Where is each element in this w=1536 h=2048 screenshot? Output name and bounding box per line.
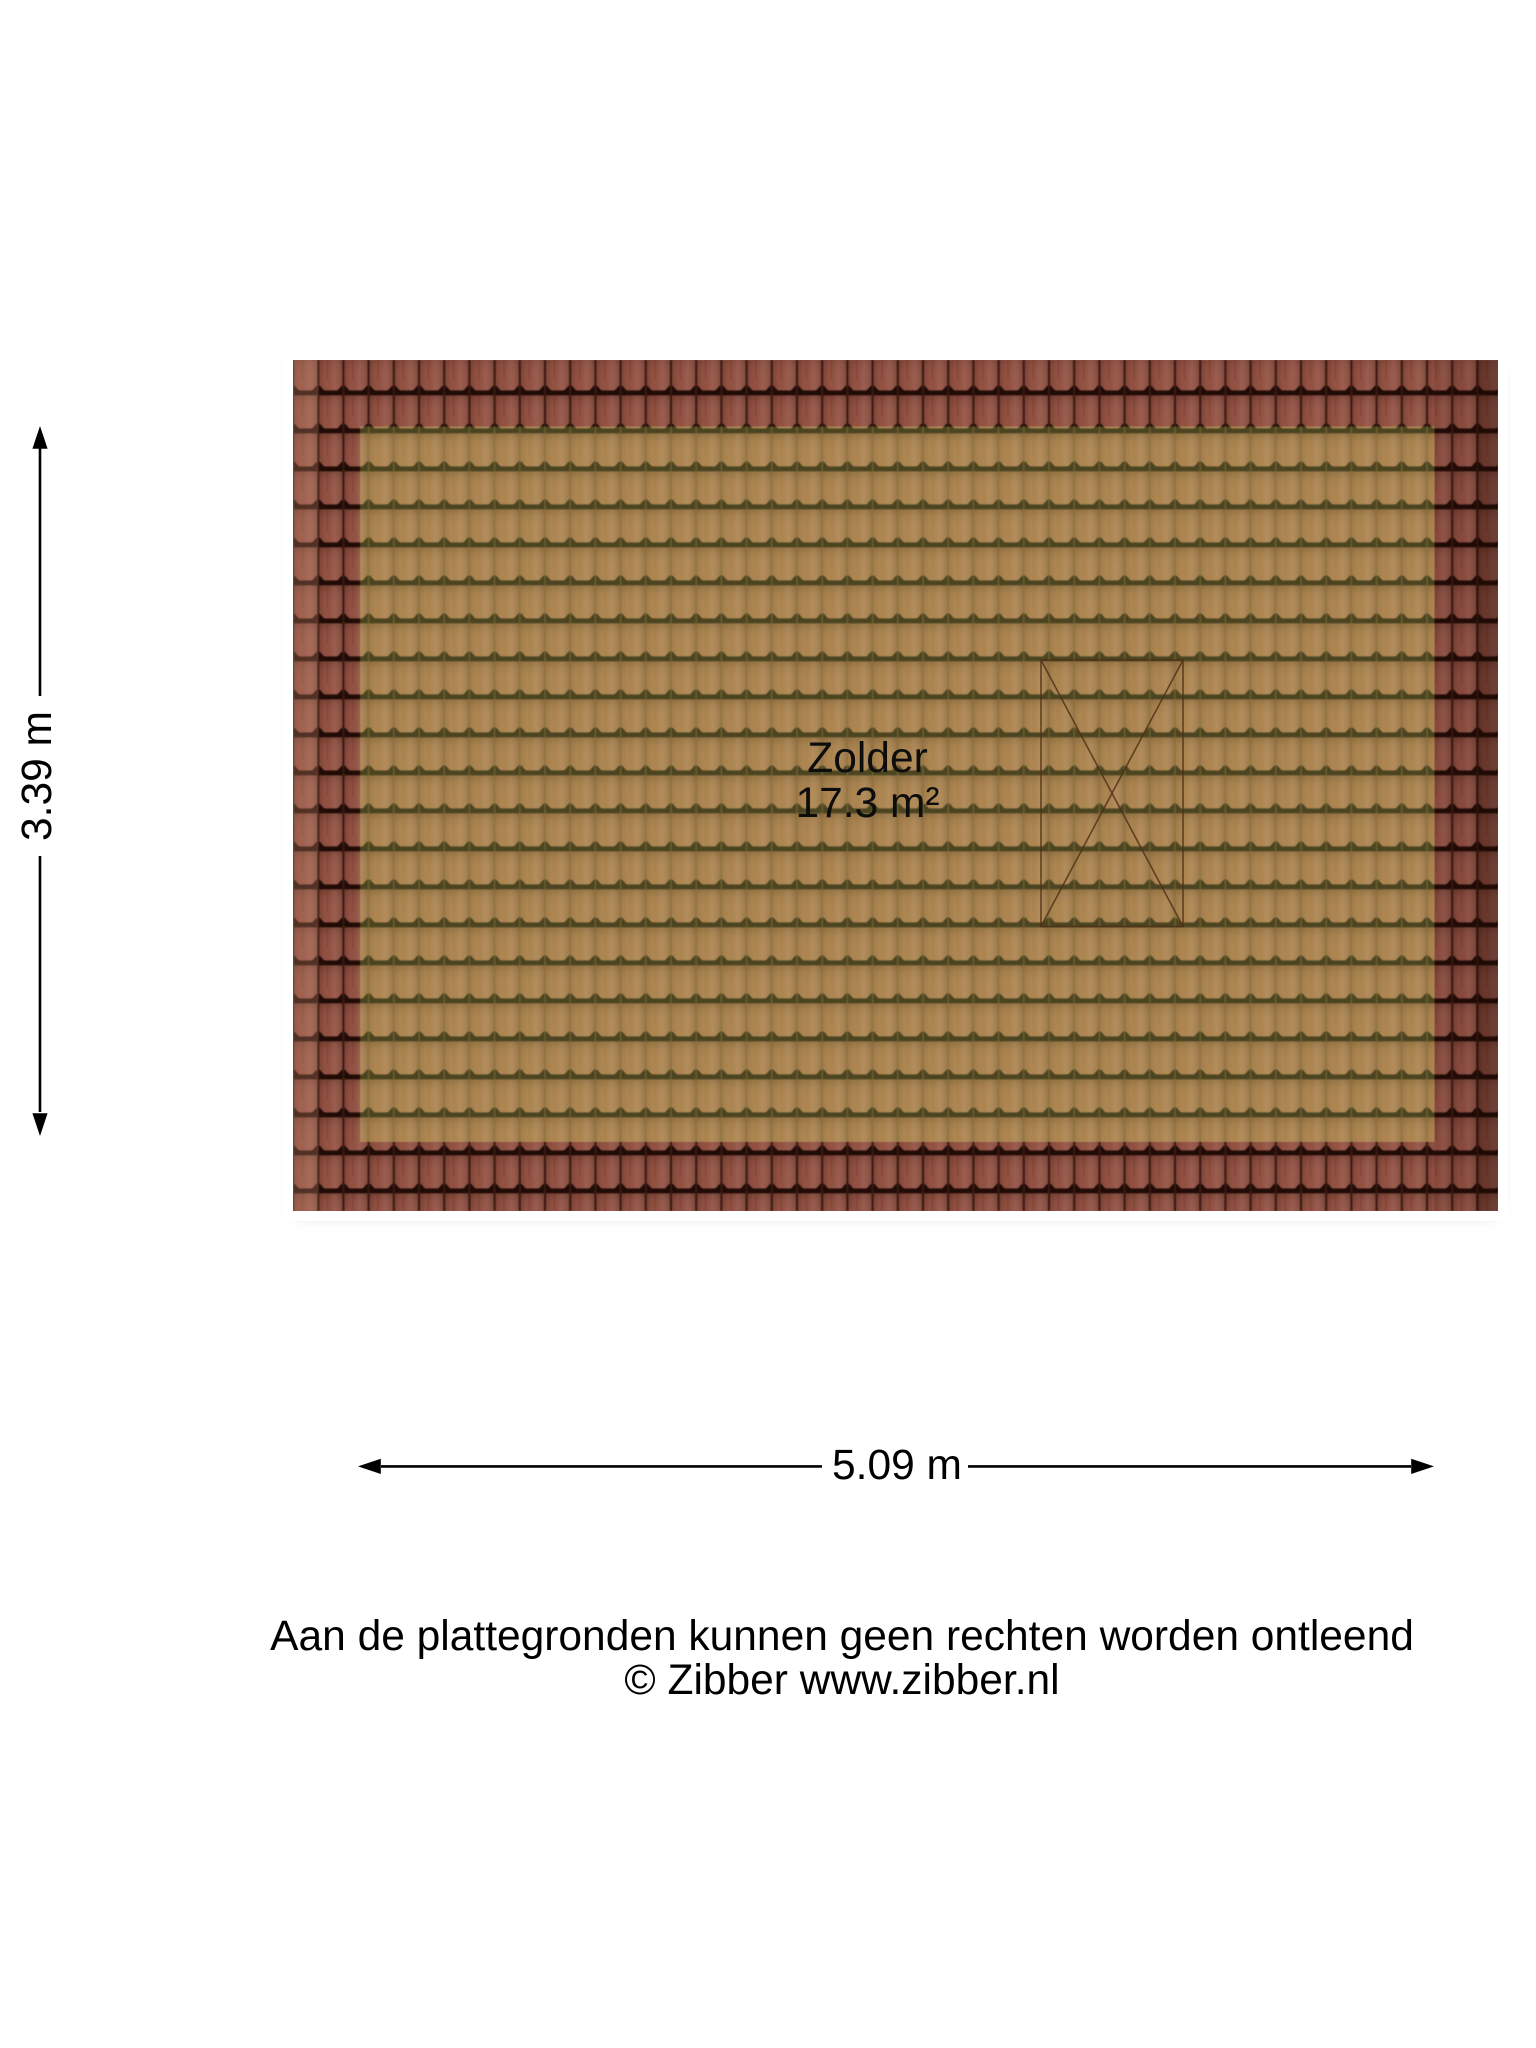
svg-text:Zolder: Zolder [807, 735, 927, 782]
svg-text:3.39 m: 3.39 m [14, 711, 61, 841]
svg-text:5.09 m: 5.09 m [832, 1442, 962, 1489]
svg-text:17.3 m²: 17.3 m² [795, 780, 939, 827]
